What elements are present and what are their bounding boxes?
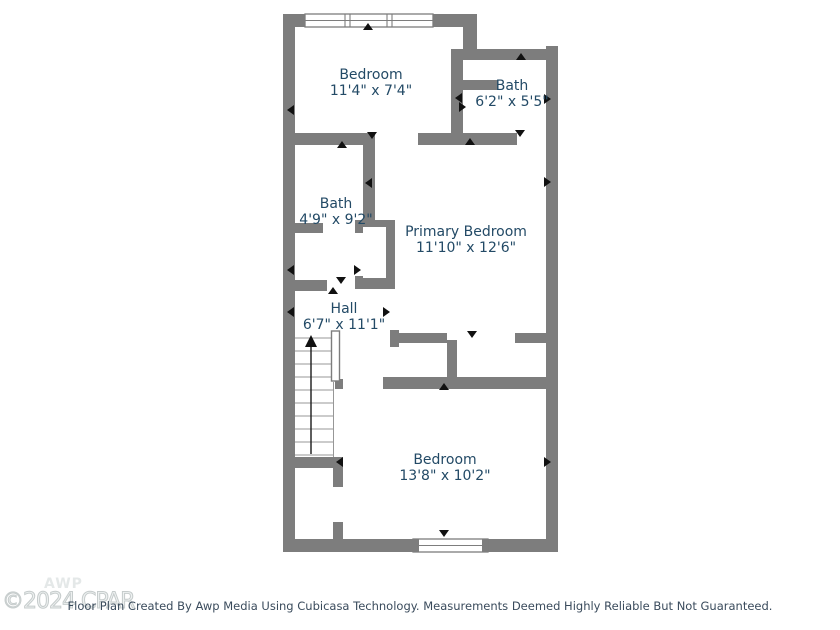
- floor-plan-drawing: Bedroom 11'4" x 7'4" Bath 6'2" x 5'5" Ba…: [0, 0, 840, 630]
- wall: [383, 377, 546, 389]
- room-dimensions: 13'8" x 10'2": [399, 468, 490, 484]
- room-dimensions: 11'4" x 7'4": [330, 83, 412, 99]
- wall: [283, 14, 295, 552]
- disclaimer-text: Floor Plan Created By Awp Media Using Cu…: [0, 599, 840, 613]
- wall: [451, 49, 558, 60]
- room-label: Bedroom: [339, 67, 402, 83]
- marker-down: [467, 331, 477, 338]
- stair-handrail: [332, 331, 340, 381]
- room-label: Bath: [320, 196, 353, 212]
- wall: [386, 220, 395, 288]
- room-labels: Bedroom 11'4" x 7'4" Bath 6'2" x 5'5" Ba…: [299, 67, 548, 484]
- wall: [546, 46, 558, 552]
- wall: [283, 539, 413, 552]
- room-label: Hall: [331, 301, 358, 317]
- room-label: Bath: [496, 78, 529, 94]
- window-end-cap: [413, 539, 419, 552]
- room-dimensions: 6'7" x 11'1": [303, 317, 385, 333]
- window-end-cap: [482, 539, 488, 552]
- room-label: Bedroom: [413, 452, 476, 468]
- bottom-window: [413, 539, 488, 552]
- wall: [390, 333, 447, 343]
- wall: [295, 280, 327, 291]
- marker-right: [354, 265, 361, 275]
- room-dimensions: 4'9" x 9'2": [299, 212, 372, 228]
- wall: [355, 276, 363, 289]
- marker-right: [383, 307, 390, 317]
- room-dimensions: 11'10" x 12'6": [416, 240, 516, 256]
- staircase: [295, 331, 340, 457]
- room-dimensions: 6'2" x 5'5": [475, 94, 548, 110]
- wall: [333, 522, 343, 552]
- wall: [515, 333, 546, 343]
- marker-down: [439, 530, 449, 537]
- marker-up: [328, 287, 338, 294]
- wall: [451, 80, 498, 90]
- marker-down: [336, 277, 346, 284]
- floor-plan-page: Bedroom 11'4" x 7'4" Bath 6'2" x 5'5" Ba…: [0, 0, 840, 630]
- stair-up-arrow: [305, 335, 317, 347]
- wall: [447, 340, 457, 382]
- room-label: Primary Bedroom: [405, 224, 527, 240]
